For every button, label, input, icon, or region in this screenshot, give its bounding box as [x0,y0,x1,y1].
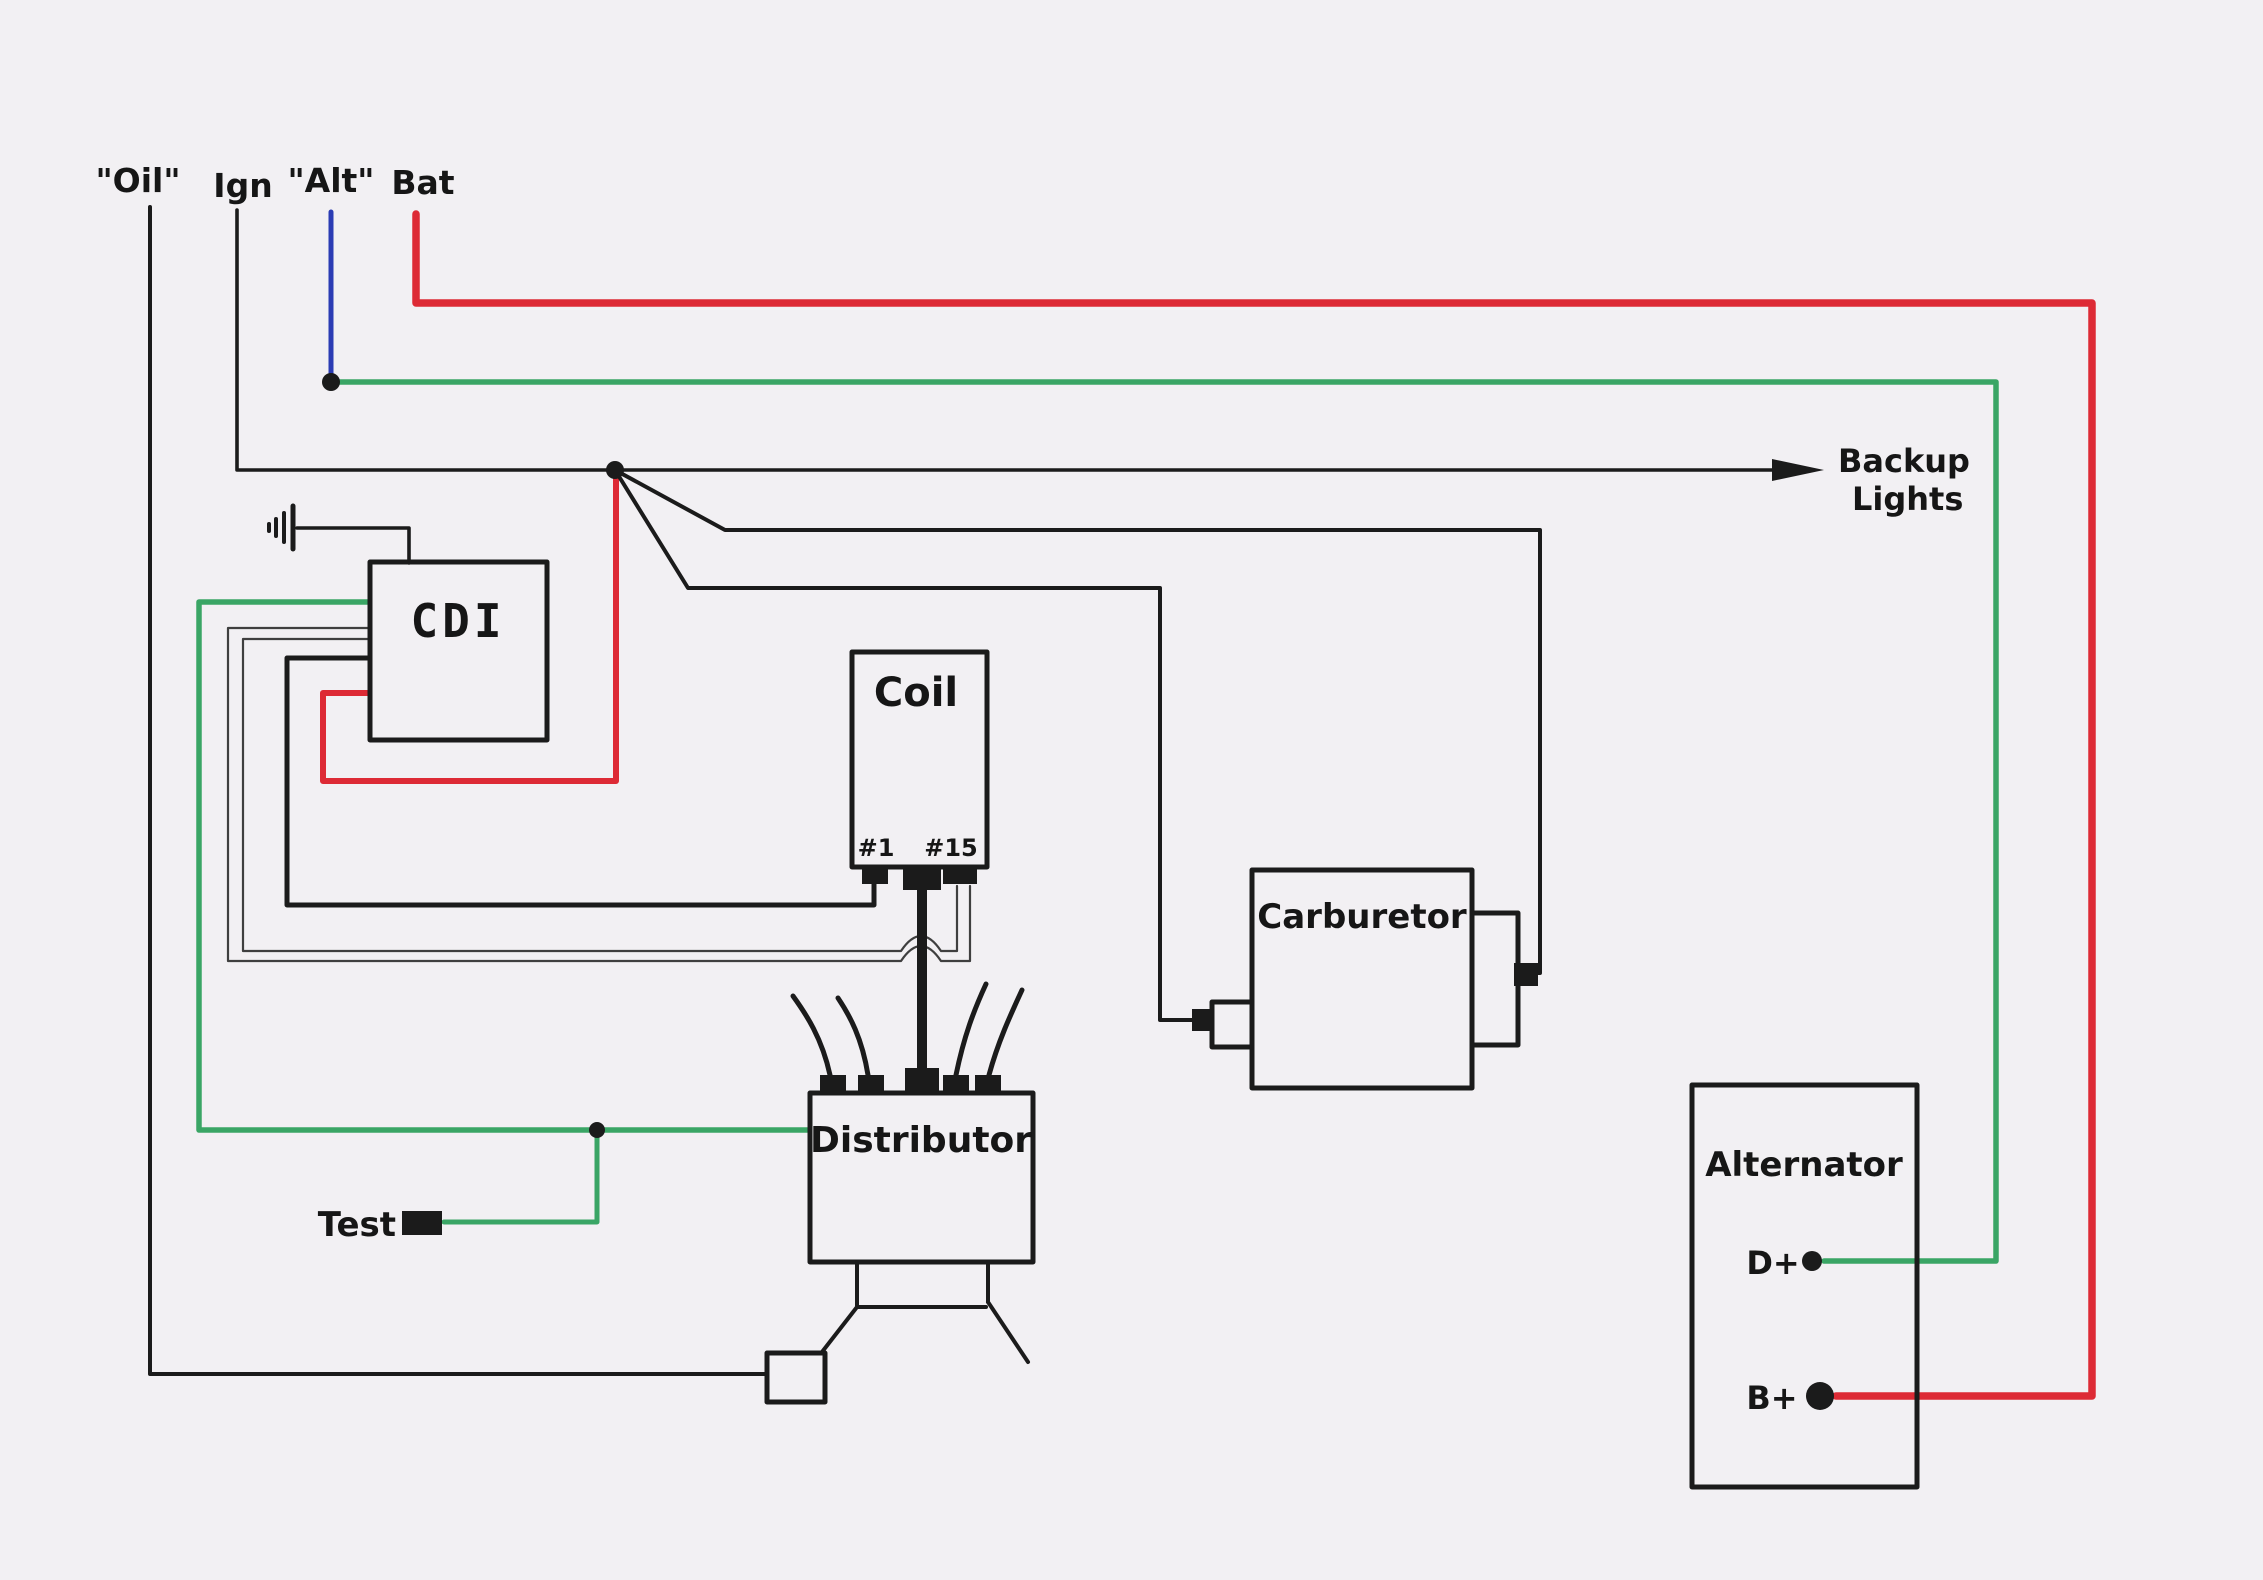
alternator-label: Alternator [1705,1145,1903,1185]
distributor-body-outline [988,1302,1028,1362]
terminal-label-bat: Bat [391,163,454,202]
alternator-b-plus-label: B+ [1746,1379,1797,1417]
cdi-label: CDI [410,594,505,648]
test-junction-dot [589,1122,605,1138]
carburetor-left-port [1212,1002,1252,1047]
test-branch-green-wire [444,1130,597,1222]
terminal-label-ign: Ign [213,166,272,205]
cdi-to-distributor-green-wire [199,602,808,1130]
alternator-d-plus-terminal [1802,1251,1822,1271]
coil-terminal-15-tab [943,866,977,884]
distributor-terminal-tab [858,1075,884,1093]
coil-terminal-1-label: #1 [858,834,895,862]
backup-lights-arrowhead-icon [1772,459,1824,481]
ground-symbol [269,506,409,563]
distributor-terminal-tab [943,1075,969,1093]
distributor-center-terminal-tab [905,1068,939,1094]
carburetor-right-port [1472,913,1518,1045]
wiring-diagram: CDI Coil #1 #15 Carburetor Distributor A… [0,0,2263,1580]
ground-lead [297,528,409,563]
backup-lights-label-line1: Backup [1838,442,1970,480]
ign-wire [237,210,1798,470]
carburetor-right-connector [1514,963,1538,986]
spark-plug-wire [956,984,986,1075]
terminal-label-alt: "Alt" [287,161,374,200]
alternator-b-plus-terminal [1806,1382,1834,1410]
spark-plug-wire [838,998,868,1075]
ignition-to-carb-left-wire [615,470,1196,1020]
distributor-label: Distributor [810,1120,1032,1161]
spark-plug-wire [989,990,1022,1075]
distributor-terminal-tab [820,1075,846,1093]
coil-terminal-1-tab [862,866,888,884]
backup-lights-label-line2: Lights [1852,480,1963,518]
coil-label: Coil [874,670,958,716]
distributor-body-outline [857,1262,986,1307]
distributor-terminal-tab [975,1075,1001,1093]
spark-plug-wire [793,996,830,1075]
terminal-label-oil: "Oil" [95,161,180,200]
alt-junction-dot [322,373,340,391]
cdi-to-coil15-wire-a [228,628,970,961]
coil-terminal-15-label: #15 [924,834,978,862]
wiring-diagram-page: CDI Coil #1 #15 Carburetor Distributor A… [0,0,2263,1580]
test-label: Test [318,1205,396,1245]
carburetor-label: Carburetor [1257,897,1467,937]
distributor-body-outline [822,1307,857,1352]
alternator-d-plus-label: D+ [1746,1244,1799,1282]
distributor-vacuum-unit-box [767,1353,825,1402]
coil-ht-tab [903,866,941,890]
cdi-box [370,562,547,740]
carburetor-left-connector [1192,1009,1214,1031]
battery-to-alternator-red-wire [416,214,2092,1396]
ignition-junction-dot [606,461,624,479]
test-connector [402,1211,442,1235]
distributor-box [810,1093,1033,1262]
